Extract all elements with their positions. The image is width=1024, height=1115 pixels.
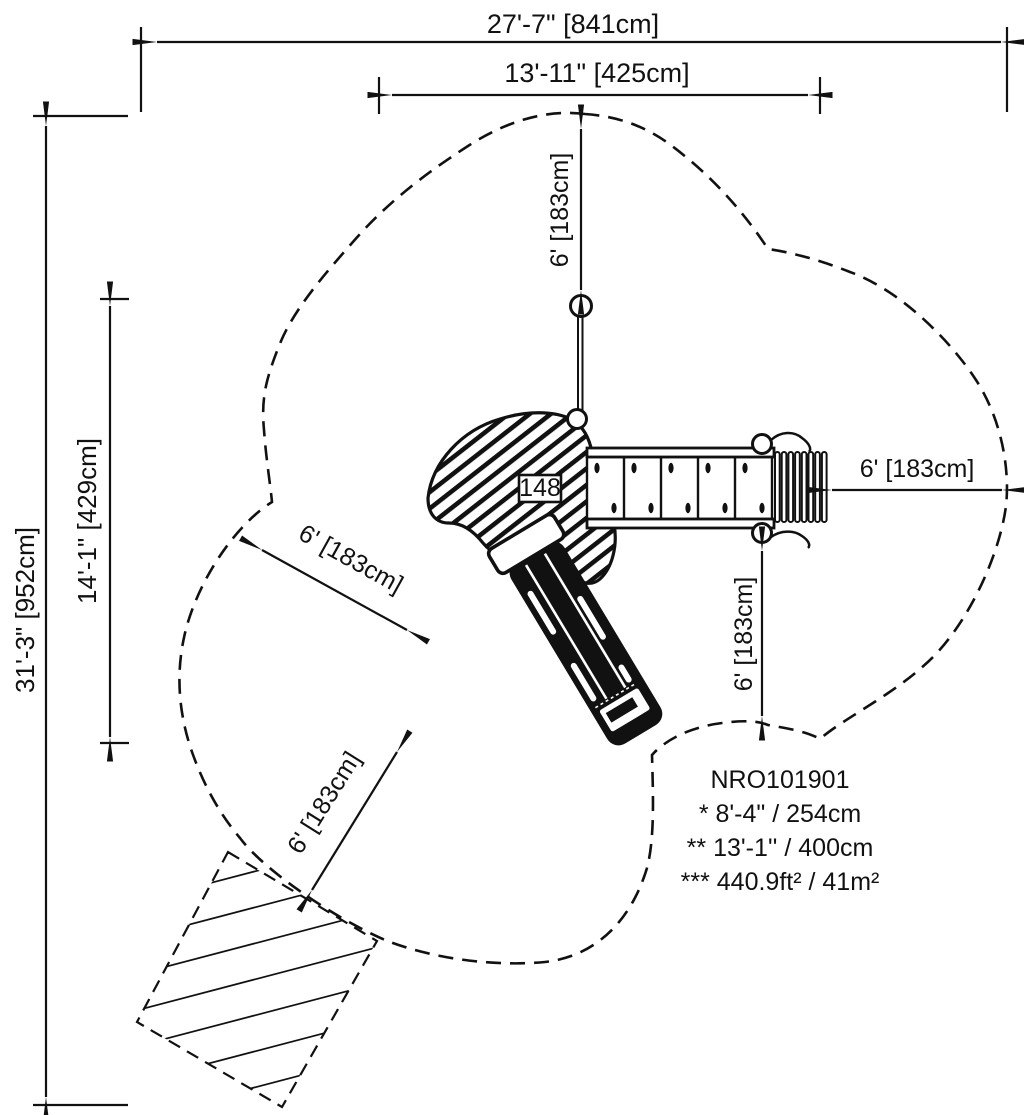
dim-overall-width-label: 27'-7" [841cm] xyxy=(487,9,659,39)
slide-clearance-hatch-area xyxy=(115,796,405,1115)
model-number: NRO101901 xyxy=(711,766,850,794)
climber-rungs xyxy=(775,452,827,522)
dim-use-zone-bottom-right-label: 6' [183cm] xyxy=(730,577,758,692)
deck-number-text: 148 xyxy=(519,474,561,502)
bridge-rail-bottom xyxy=(587,519,774,528)
handle-hook-top xyxy=(771,433,810,452)
overhead-pole xyxy=(568,296,592,429)
dim-deck-span-height-label: 14'-1" [429cm] xyxy=(72,438,102,604)
pole-deck-knob xyxy=(568,410,587,429)
dim-overall-height-label: 31'-3" [952cm] xyxy=(10,527,40,693)
dim-use-zone-top-label: 6' [183cm] xyxy=(546,153,574,268)
info-note-2: ** 13'-1'' / 400cm xyxy=(687,834,874,862)
pole-top-knob xyxy=(571,296,592,317)
dim-use-zone-slide-exit-label: 6' [183cm] xyxy=(282,747,366,859)
bridge-rail-top xyxy=(587,448,774,457)
plan-svg: 148 xyxy=(0,0,1024,1115)
dim-use-zone-slide-exit: 6' [183cm] xyxy=(282,747,397,890)
deck-number-label: 148 xyxy=(519,474,561,502)
dim-use-zone-slide-side-label: 6' [183cm] xyxy=(294,519,408,599)
info-block: NRO101901 * 8'-4" / 254cm ** 13'-1'' / 4… xyxy=(681,766,880,896)
info-note-1: * 8'-4" / 254cm xyxy=(699,800,861,828)
dim-use-zone-slide-side: 6' [183cm] xyxy=(262,519,408,630)
dim-deck-span-width: 13'-11" [425cm] xyxy=(379,58,820,114)
handle-hook-bottom xyxy=(771,532,809,548)
info-note-3: *** 440.9ft² / 41m² xyxy=(681,868,880,896)
dim-deck-span-width-label: 13'-11" [425cm] xyxy=(504,58,689,88)
handle-ball-bottom xyxy=(753,524,772,543)
bridge xyxy=(587,448,774,528)
dim-use-zone-top: 6' [183cm] xyxy=(546,129,581,290)
dim-use-zone-bottom-right: 6' [183cm] xyxy=(730,551,762,716)
dim-use-zone-right: 6' [183cm] xyxy=(832,455,1002,490)
handle-ball-top xyxy=(753,435,772,454)
hatch-lines xyxy=(115,796,405,1115)
dim-deck-span-height: 14'-1" [429cm] xyxy=(72,299,129,743)
playground-plan-drawing: 148 xyxy=(0,0,1024,1115)
dim-use-zone-right-label: 6' [183cm] xyxy=(860,455,975,483)
